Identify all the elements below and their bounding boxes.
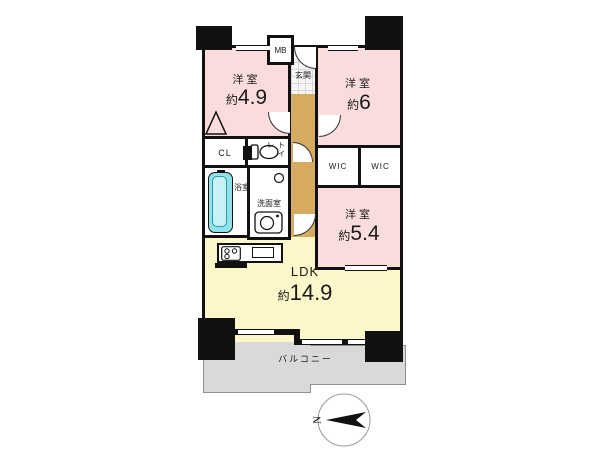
washing-machine-icon (254, 211, 284, 235)
compass-arrow-icon (326, 412, 366, 428)
ldk-window-left (238, 329, 274, 335)
room-name: 洋室 (233, 74, 261, 87)
approx-prefix: 約 (226, 93, 238, 107)
closet-cl-label: CL (205, 139, 245, 167)
balcony-label: バルコニー (258, 352, 353, 364)
kitchen-counter (217, 243, 283, 263)
sink-icon (273, 172, 285, 184)
room-6-window (328, 45, 358, 51)
room-size: 4.9 (238, 86, 267, 109)
kitchen-wall-stub (215, 263, 247, 268)
room-size: 6 (359, 91, 371, 114)
wic-right-label: WIC (361, 148, 400, 185)
wic-right: WIC (358, 145, 403, 188)
genkan-label: 玄関 (290, 70, 316, 80)
toilet-label: トイレ (265, 141, 287, 165)
room-4-9-window (236, 45, 270, 51)
bath-room: 浴室 (202, 165, 250, 238)
closet-door-triangle (203, 110, 231, 136)
ldk-window-right (348, 339, 366, 345)
wic-left-label: WIC (318, 148, 358, 185)
compass: N (310, 392, 378, 450)
bathtub-icon (208, 172, 233, 233)
room-ldk-label: LDK 約14.9 (230, 255, 380, 315)
meter-box: MB (267, 35, 294, 65)
washroom: 洗面室 (247, 165, 291, 240)
meter-box-label: MB (270, 38, 291, 62)
bath-faucet-icon (217, 170, 225, 173)
approx-prefix: 約 (338, 229, 350, 243)
washroom-label: 洗面室 (250, 198, 288, 209)
room-name: 洋室 (345, 78, 373, 91)
pillar-top-left (196, 26, 232, 50)
room-name: LDK (291, 265, 319, 280)
floorplan-canvas: バルコニー 洋室 約4.9 洋室 約6 WIC WIC 洋室 約5.4 LDK … (0, 0, 600, 450)
kitchen-sink-icon (252, 247, 274, 258)
stove-icon (221, 246, 241, 261)
pillar-bottom-right (365, 331, 403, 362)
room-name: 洋室 (345, 209, 373, 222)
pillar-bottom-left (198, 318, 235, 360)
room-size: 5.4 (350, 222, 379, 245)
pillar-top-right (365, 16, 403, 50)
compass-north-label: N (312, 416, 324, 424)
wic-left: WIC (315, 145, 361, 188)
room-size: 14.9 (290, 280, 333, 305)
ldk-window-center (302, 339, 342, 345)
approx-prefix: 約 (278, 289, 290, 303)
wall-stub (243, 146, 252, 160)
approx-prefix: 約 (347, 98, 359, 112)
